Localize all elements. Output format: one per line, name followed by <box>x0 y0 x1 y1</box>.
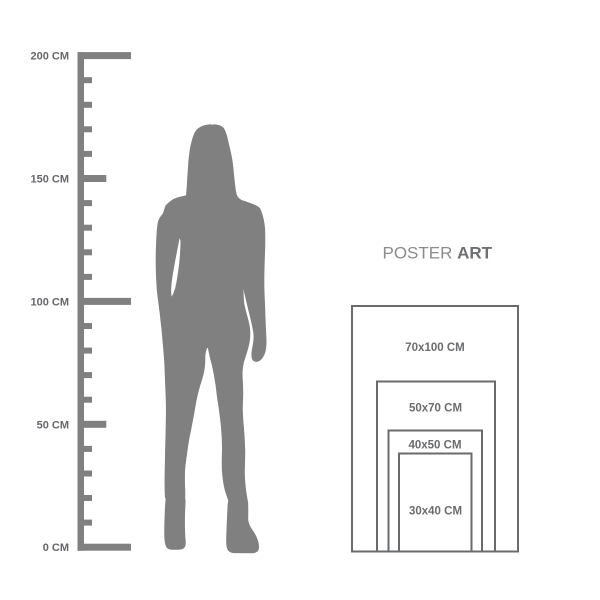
svg-text:200 CM: 200 CM <box>30 51 69 63</box>
svg-text:50 CM: 50 CM <box>37 419 69 431</box>
svg-text:100 CM: 100 CM <box>30 296 69 308</box>
svg-text:150 CM: 150 CM <box>30 174 69 186</box>
svg-text:40x50 CM: 40x50 CM <box>408 439 461 451</box>
svg-text:POSTER ART: POSTER ART <box>383 244 493 263</box>
svg-text:30x40 CM: 30x40 CM <box>409 506 462 518</box>
svg-text:0 CM: 0 CM <box>43 542 69 554</box>
svg-text:50x70 CM: 50x70 CM <box>409 403 462 415</box>
svg-text:70x100 CM: 70x100 CM <box>405 342 464 354</box>
